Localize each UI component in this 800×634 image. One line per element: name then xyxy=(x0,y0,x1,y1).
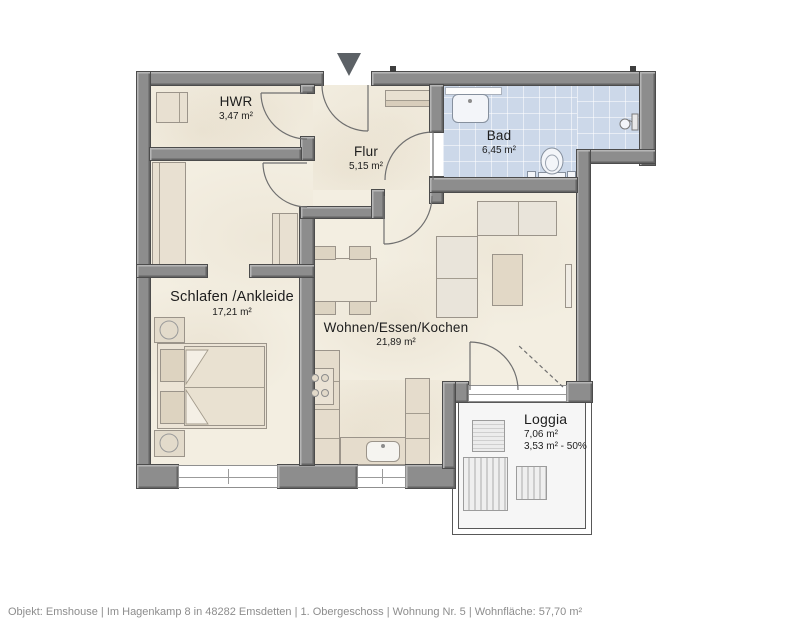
loggia-door-threshold xyxy=(468,385,567,402)
wall-bad-bottom xyxy=(430,178,577,192)
wohnen-area: 21,89 m² xyxy=(316,337,476,348)
entrance-arrow-icon xyxy=(337,53,361,76)
wall-loggia-jamb-right xyxy=(567,382,592,402)
footer-caption: Objekt: Emshouse | Im Hagenkamp 8 in 482… xyxy=(8,606,792,618)
hwr-name: HWR xyxy=(176,94,296,109)
wall-top-right xyxy=(372,72,655,85)
window-kueche xyxy=(357,465,406,488)
nightstand-top xyxy=(154,317,185,343)
bath-sink xyxy=(452,94,489,123)
wall-living-right xyxy=(577,150,590,402)
wall-bottom-2 xyxy=(278,465,357,488)
wall-kitchen-right xyxy=(443,382,455,468)
hwr-area: 3,47 m² xyxy=(176,111,296,122)
wall-left xyxy=(137,72,150,488)
flur-name: Flur xyxy=(316,144,416,159)
flur-area: 5,15 m² xyxy=(316,161,416,172)
window-schlafen xyxy=(178,465,278,488)
wall-flur-bottom xyxy=(301,207,381,218)
wall-ankleide-stub-right xyxy=(250,265,314,277)
bad-name: Bad xyxy=(449,128,549,143)
wall-marker-2 xyxy=(630,66,636,72)
wall-hwr-ankleide xyxy=(150,148,301,160)
wall-schlafen-wohnen xyxy=(300,207,314,465)
loggia-area-weighted: 3,53 m² - 50% xyxy=(524,441,604,452)
schlafen-area: 17,21 m² xyxy=(152,307,312,318)
wall-bad-left xyxy=(430,85,443,132)
bed-mattress xyxy=(184,346,265,426)
dining-chair-4 xyxy=(349,301,371,315)
dining-chair-3 xyxy=(314,301,336,315)
ankleide-wardrobe-left xyxy=(152,162,186,266)
wall-bottom-3 xyxy=(406,465,455,488)
bad-floor-niche xyxy=(577,85,640,150)
wall-hwr-flur-bottom xyxy=(301,137,314,160)
wohnen-name: Wohnen/Essen/Kochen xyxy=(316,320,476,335)
schlafen-name: Schlafen /Ankleide xyxy=(152,289,312,305)
schlafen-label: Schlafen /Ankleide 17,21 m² xyxy=(152,289,312,318)
kitchen-counter-right xyxy=(405,378,430,465)
dining-table xyxy=(312,258,377,302)
nightstand-bottom xyxy=(154,430,185,457)
floor-plan-page: HWR 3,47 m² Flur 5,15 m² Bad 6,45 m² Sch… xyxy=(0,0,800,634)
wall-bottom-1 xyxy=(137,465,178,488)
dining-chair-2 xyxy=(349,246,371,260)
loggia-side-table xyxy=(472,420,505,452)
loggia-label: Loggia 7,06 m² 3,53 m² - 50% xyxy=(524,411,604,452)
flur-wardrobe-shelf xyxy=(385,90,435,107)
kitchen-sink xyxy=(366,441,400,462)
bed-pillow-top xyxy=(160,349,185,382)
sofa-left xyxy=(436,236,478,318)
tv-board xyxy=(565,264,572,308)
coffee-table xyxy=(492,254,523,306)
wall-marker-1 xyxy=(390,66,396,72)
wohnen-label: Wohnen/Essen/Kochen 21,89 m² xyxy=(316,320,476,348)
wall-flur-step xyxy=(372,190,384,218)
loggia-name: Loggia xyxy=(524,411,604,427)
flur-label: Flur 5,15 m² xyxy=(316,144,416,172)
wall-ankleide-stub-left xyxy=(137,265,207,277)
ankleide-wardrobe-right xyxy=(272,213,298,266)
loggia-area: 7,06 m² xyxy=(524,429,604,440)
dining-chair-1 xyxy=(314,246,336,260)
bad-area: 6,45 m² xyxy=(449,145,549,156)
bad-label: Bad 6,45 m² xyxy=(449,128,549,156)
bed-pillow-bottom xyxy=(160,391,185,424)
loggia-lounger xyxy=(463,457,508,511)
hwr-label: HWR 3,47 m² xyxy=(176,94,296,122)
sofa-top xyxy=(477,201,557,236)
loggia-table xyxy=(516,466,547,500)
wall-top-left xyxy=(137,72,323,85)
wall-hwr-flur-top xyxy=(301,85,314,93)
